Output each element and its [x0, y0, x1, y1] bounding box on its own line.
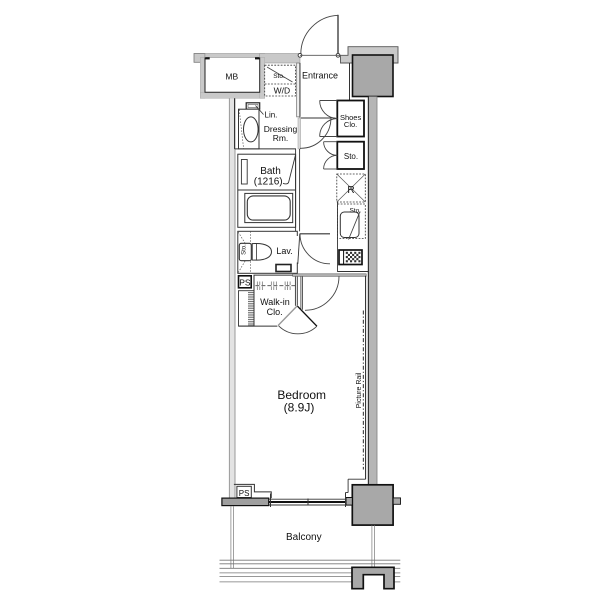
svg-text:Clo.: Clo. [344, 120, 357, 129]
svg-text:Entrance: Entrance [302, 71, 338, 81]
svg-text:Lav.: Lav. [276, 246, 292, 256]
svg-text:PS: PS [239, 277, 251, 287]
svg-text:Sto.: Sto. [350, 208, 362, 215]
svg-text:Sto.: Sto. [273, 73, 285, 80]
svg-text:Sto.: Sto. [344, 152, 358, 161]
svg-text:W/D: W/D [274, 86, 291, 96]
svg-text:Rm.: Rm. [273, 133, 289, 143]
svg-text:Picture Rail: Picture Rail [356, 372, 363, 408]
svg-text:MB: MB [225, 72, 238, 82]
svg-text:(8.9J): (8.9J) [284, 401, 315, 415]
svg-text:Clo.: Clo. [267, 307, 283, 317]
svg-text:Bath: Bath [260, 166, 281, 177]
svg-text:PS: PS [239, 489, 250, 498]
svg-text:Balcony: Balcony [286, 532, 322, 543]
svg-text:Sto.: Sto. [241, 244, 247, 255]
svg-text:(1216): (1216) [254, 177, 283, 188]
svg-text:Lin.: Lin. [265, 111, 278, 120]
svg-text:Walk-in: Walk-in [260, 297, 290, 307]
svg-text:R: R [347, 185, 354, 196]
